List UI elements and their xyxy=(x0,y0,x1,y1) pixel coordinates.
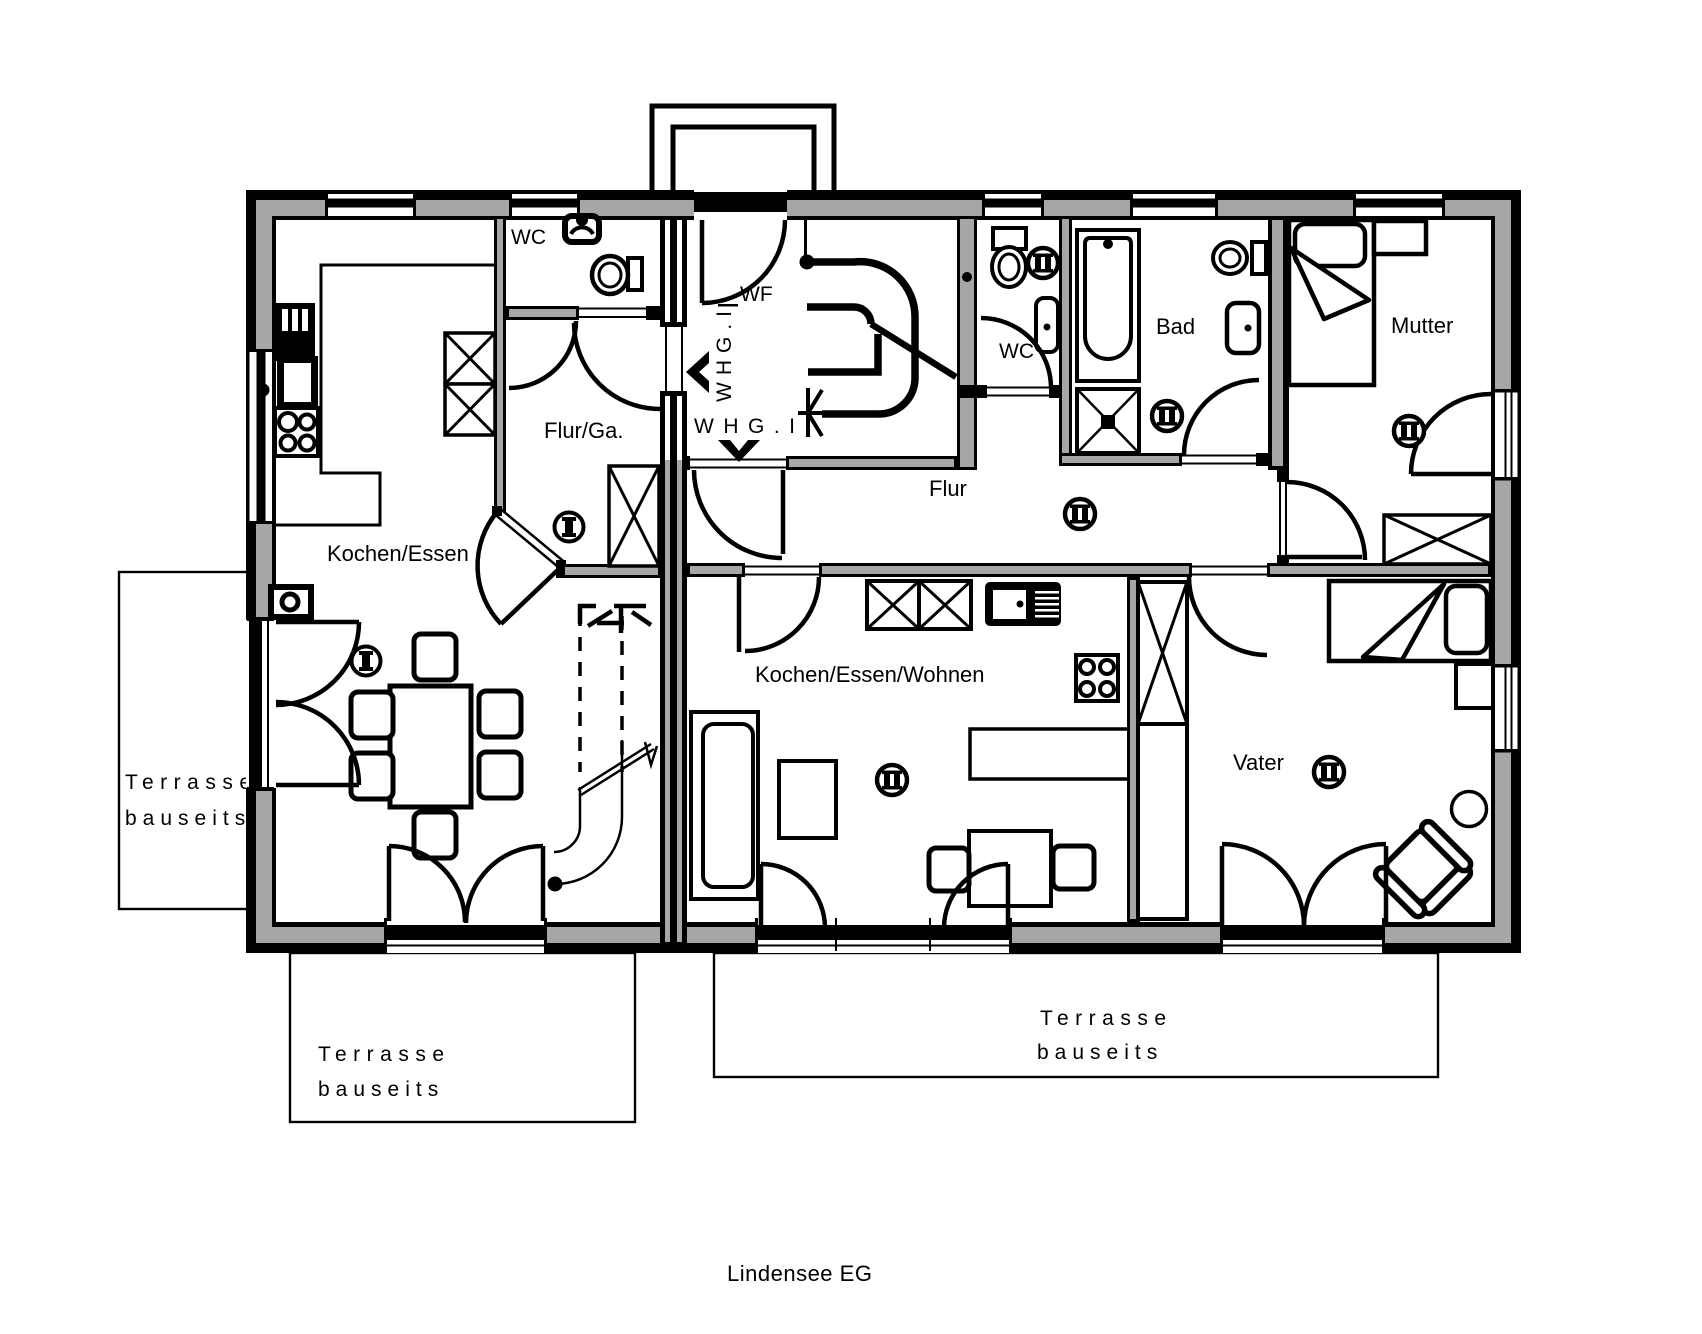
svg-text:Kochen/Essen: Kochen/Essen xyxy=(327,541,469,566)
svg-text:Lindensee EG: Lindensee EG xyxy=(727,1261,872,1286)
svg-text:Vater: Vater xyxy=(1233,750,1284,775)
svg-text:Flur: Flur xyxy=(929,476,967,501)
svg-text:Kochen/Essen/Wohnen: Kochen/Essen/Wohnen xyxy=(755,662,985,687)
svg-text:WF: WF xyxy=(740,283,773,306)
svg-text:bauseits: bauseits xyxy=(318,1078,444,1101)
svg-text:Flur/Ga.: Flur/Ga. xyxy=(544,418,623,443)
svg-text:WHG.I: WHG.I xyxy=(713,304,736,402)
svg-text:WC: WC xyxy=(999,340,1034,363)
svg-text:Bad: Bad xyxy=(1156,314,1195,339)
svg-text:Terrasse: Terrasse xyxy=(1040,1007,1173,1030)
svg-text:Terrasse: Terrasse xyxy=(125,771,258,794)
svg-text:bauseits: bauseits xyxy=(125,807,251,830)
svg-text:Terrasse: Terrasse xyxy=(318,1043,451,1066)
svg-text:WHG.II: WHG.II xyxy=(694,415,820,438)
svg-text:Mutter: Mutter xyxy=(1391,313,1453,338)
svg-text:bauseits: bauseits xyxy=(1037,1041,1163,1064)
svg-text:WC: WC xyxy=(511,226,546,249)
